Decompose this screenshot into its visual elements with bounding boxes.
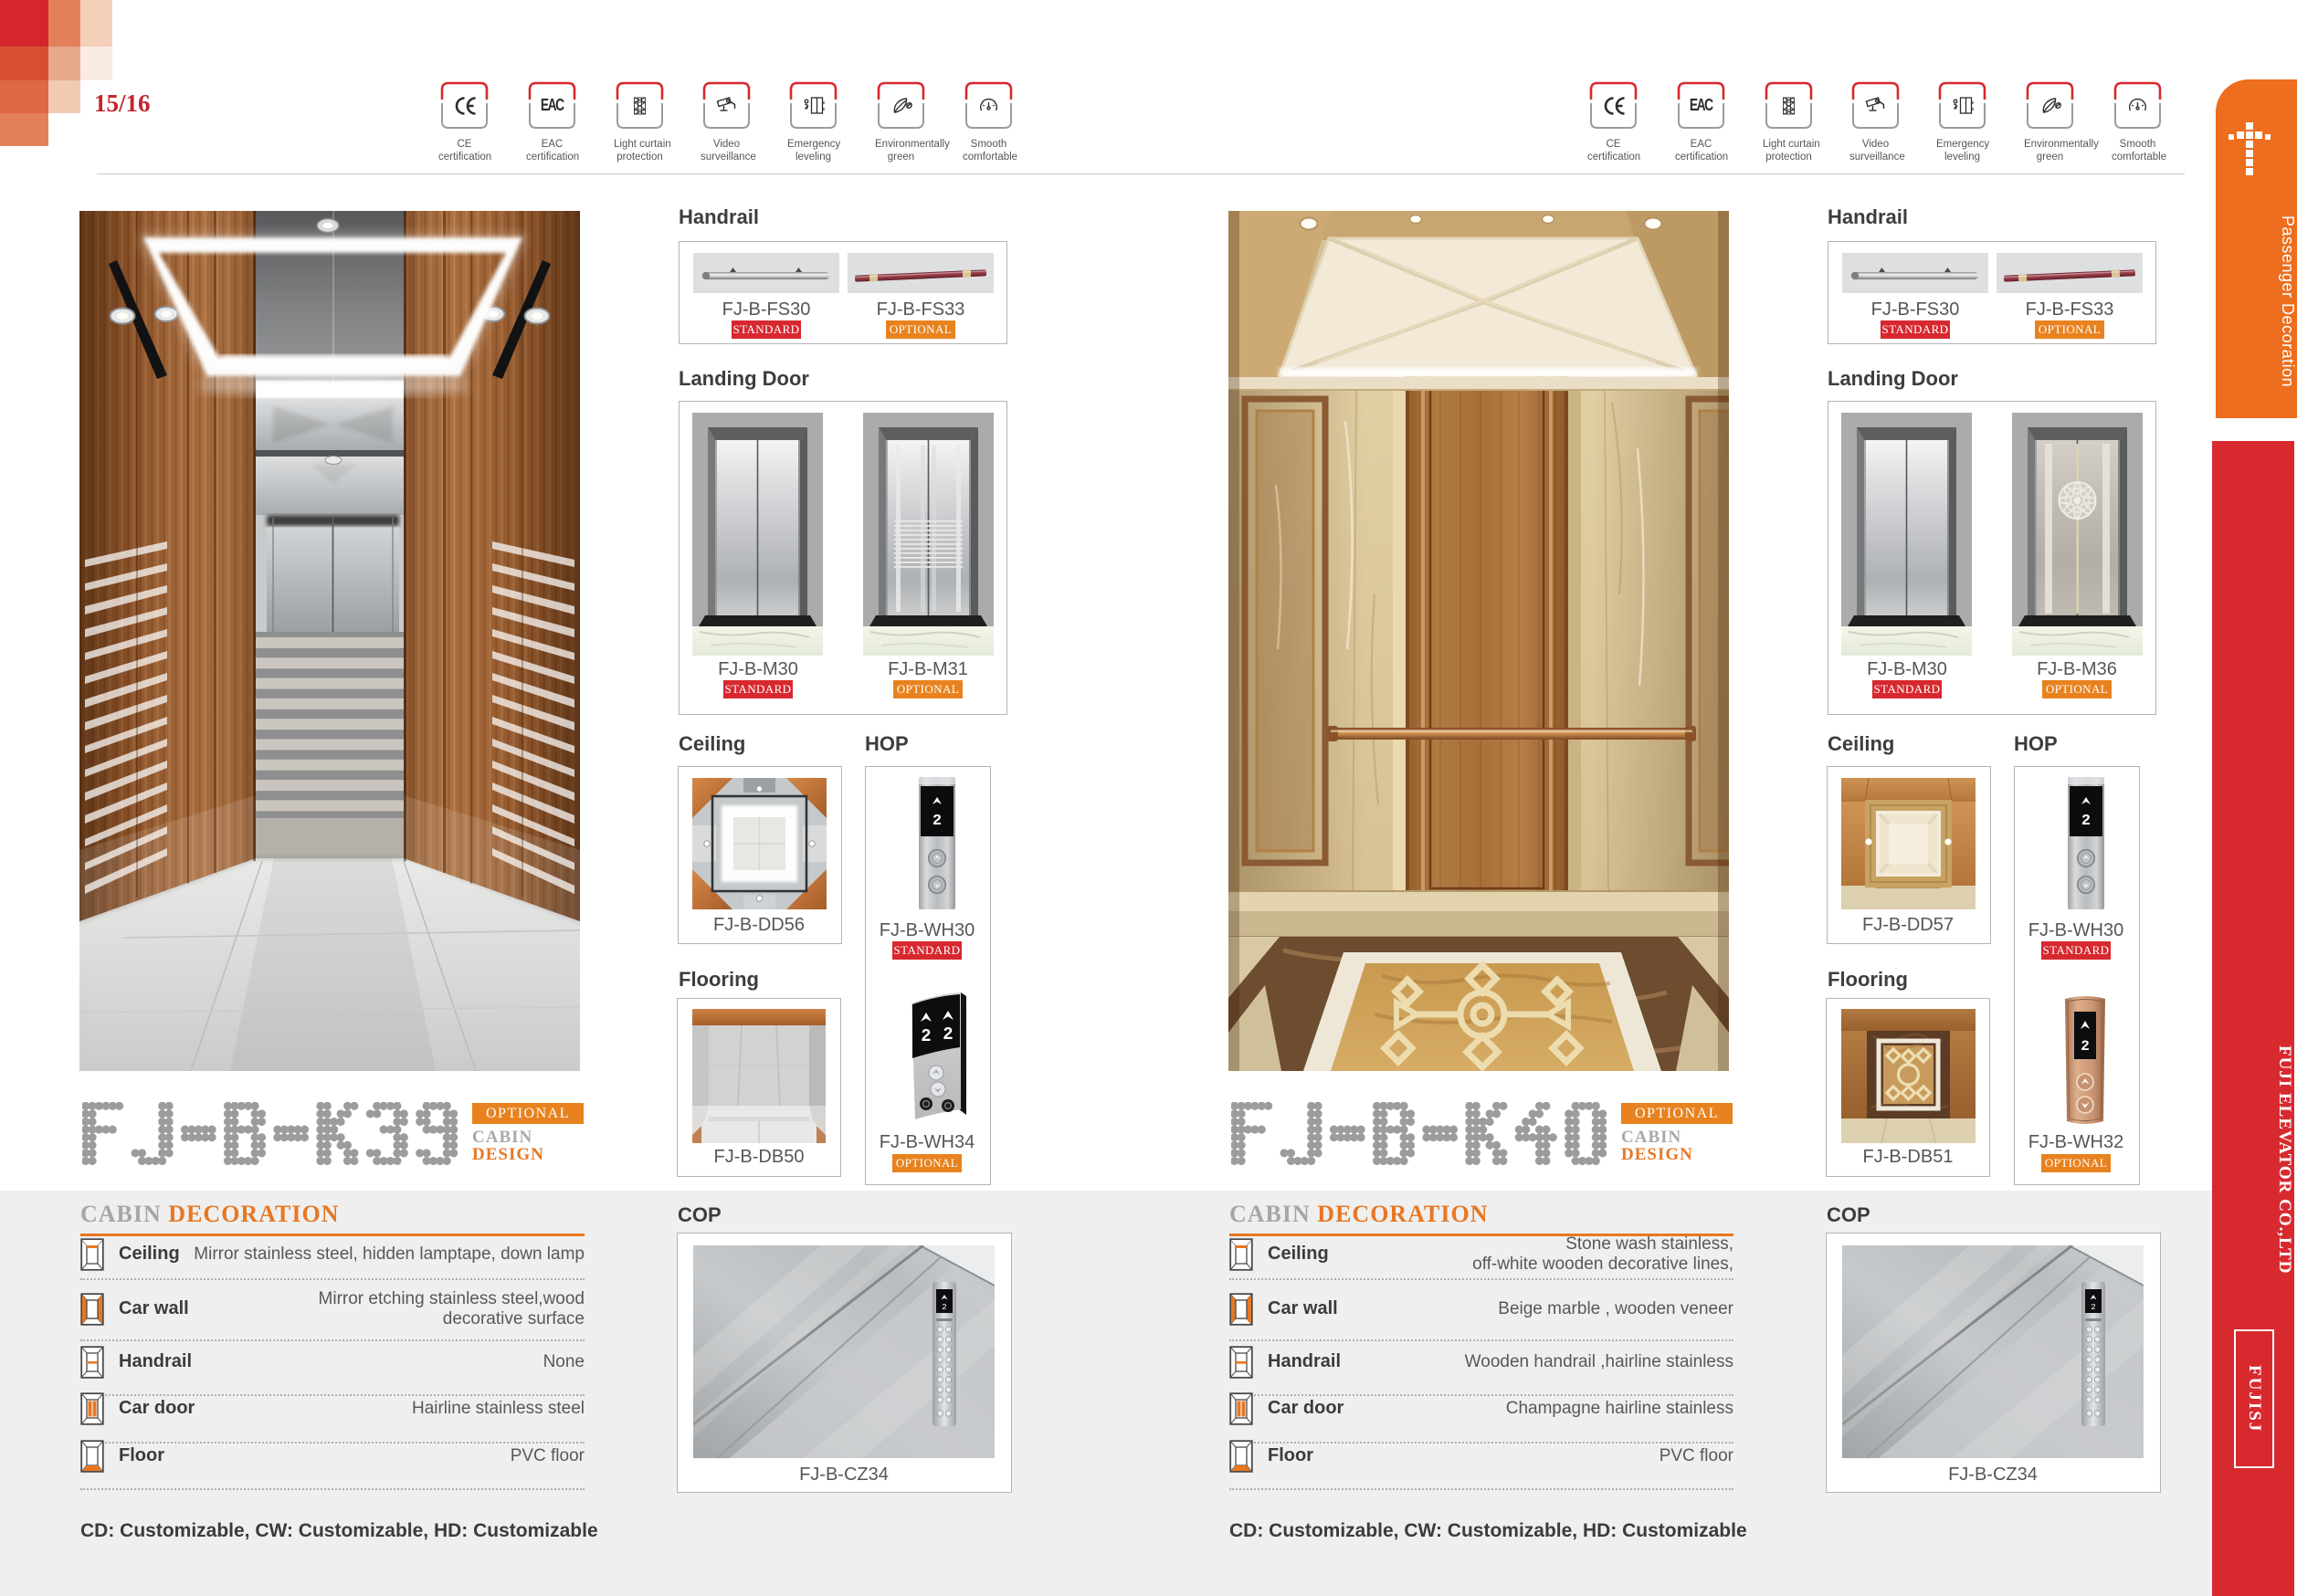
svg-text:2: 2 <box>2081 1038 2090 1055</box>
svg-text:2: 2 <box>942 1303 946 1312</box>
svg-text:EAC: EAC <box>541 96 564 115</box>
svg-text:2: 2 <box>2091 1303 2095 1312</box>
svg-text:2: 2 <box>921 1026 931 1046</box>
svg-text:2: 2 <box>943 1024 953 1045</box>
svg-text:EAC: EAC <box>1690 96 1713 115</box>
svg-text:2: 2 <box>2081 813 2091 830</box>
svg-text:2: 2 <box>932 813 942 830</box>
